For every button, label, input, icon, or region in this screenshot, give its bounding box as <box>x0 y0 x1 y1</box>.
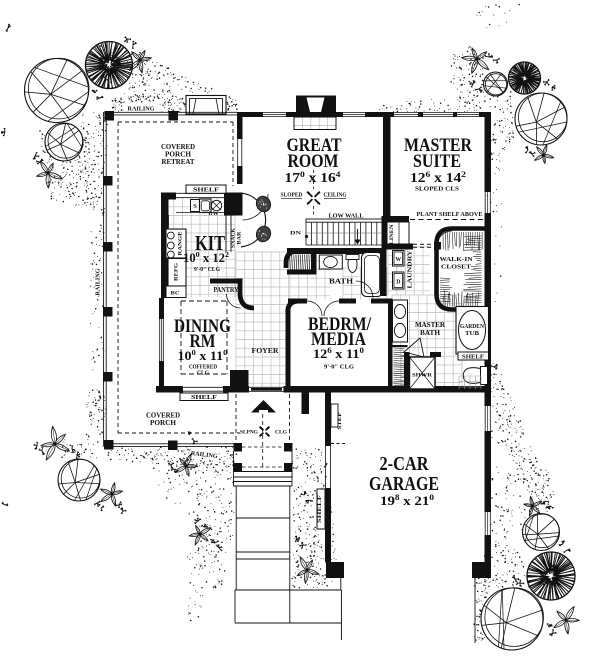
svg-text:CEILING: CEILING <box>324 192 347 199</box>
svg-text:REFG: REFG <box>174 262 180 281</box>
svg-text:PORCH: PORCH <box>150 419 176 427</box>
svg-text:100 x 122: 100 x 122 <box>183 250 229 265</box>
svg-text:SLPNG: SLPNG <box>240 430 259 436</box>
svg-text:WALK-IN: WALK-IN <box>440 256 473 263</box>
svg-text:PLANT SHELF ABOVE: PLANT SHELF ABOVE <box>417 211 483 218</box>
svg-text:STEP: STEP <box>337 411 343 429</box>
svg-text:RETREAT: RETREAT <box>162 158 195 166</box>
svg-text:SHELF: SHELF <box>191 394 217 401</box>
svg-text:S: S <box>193 203 197 210</box>
svg-text:CLG: CLG <box>197 371 209 377</box>
svg-text:2-CAR: 2-CAR <box>380 453 429 475</box>
svg-text:SLOPED: SLOPED <box>281 192 303 199</box>
svg-text:GARAGE: GARAGE <box>369 473 439 495</box>
svg-text:SHELF: SHELF <box>317 495 323 523</box>
svg-text:LAUNDRY: LAUNDRY <box>408 250 414 289</box>
svg-text:RAILING: RAILING <box>95 268 102 295</box>
svg-text:9'-0" CLG: 9'-0" CLG <box>194 267 220 273</box>
svg-text:BC: BC <box>171 291 180 297</box>
svg-text:126 x 110: 126 x 110 <box>313 346 364 361</box>
svg-text:126 x 142: 126 x 142 <box>410 170 466 185</box>
svg-text:170 x 164: 170 x 164 <box>285 170 342 185</box>
svg-text:CLG: CLG <box>275 430 288 436</box>
svg-text:W: W <box>395 257 401 263</box>
svg-text:MASTER: MASTER <box>415 321 446 329</box>
svg-text:DW: DW <box>209 211 220 217</box>
svg-text:SHWR: SHWR <box>412 373 433 379</box>
svg-text:9'-0" CLG: 9'-0" CLG <box>324 365 355 371</box>
svg-text:BAR: BAR <box>237 231 243 244</box>
svg-text:BATH: BATH <box>420 329 440 337</box>
svg-text:TUB: TUB <box>465 331 479 337</box>
svg-text:ROOM: ROOM <box>288 151 339 172</box>
svg-text:DN: DN <box>290 231 301 237</box>
svg-text:SUITE: SUITE <box>413 151 461 172</box>
svg-text:SHELF: SHELF <box>462 354 485 360</box>
svg-text:LOW WALL: LOW WALL <box>329 213 364 220</box>
svg-text:GARDEN: GARDEN <box>460 324 485 330</box>
svg-text:CLOSET: CLOSET <box>441 264 472 271</box>
svg-text:SHELF: SHELF <box>193 186 219 193</box>
svg-text:LINEN: LINEN <box>389 225 395 245</box>
svg-text:BATH: BATH <box>329 277 353 286</box>
svg-text:FOYER: FOYER <box>252 347 280 355</box>
svg-text:100 x 110: 100 x 110 <box>178 348 228 363</box>
svg-text:PANTRY: PANTRY <box>214 287 239 294</box>
svg-text:D: D <box>396 280 400 286</box>
svg-text:RAILING: RAILING <box>128 106 155 113</box>
svg-text:SLOPED CLS: SLOPED CLS <box>415 186 460 193</box>
svg-text:198 x 210: 198 x 210 <box>380 493 434 508</box>
